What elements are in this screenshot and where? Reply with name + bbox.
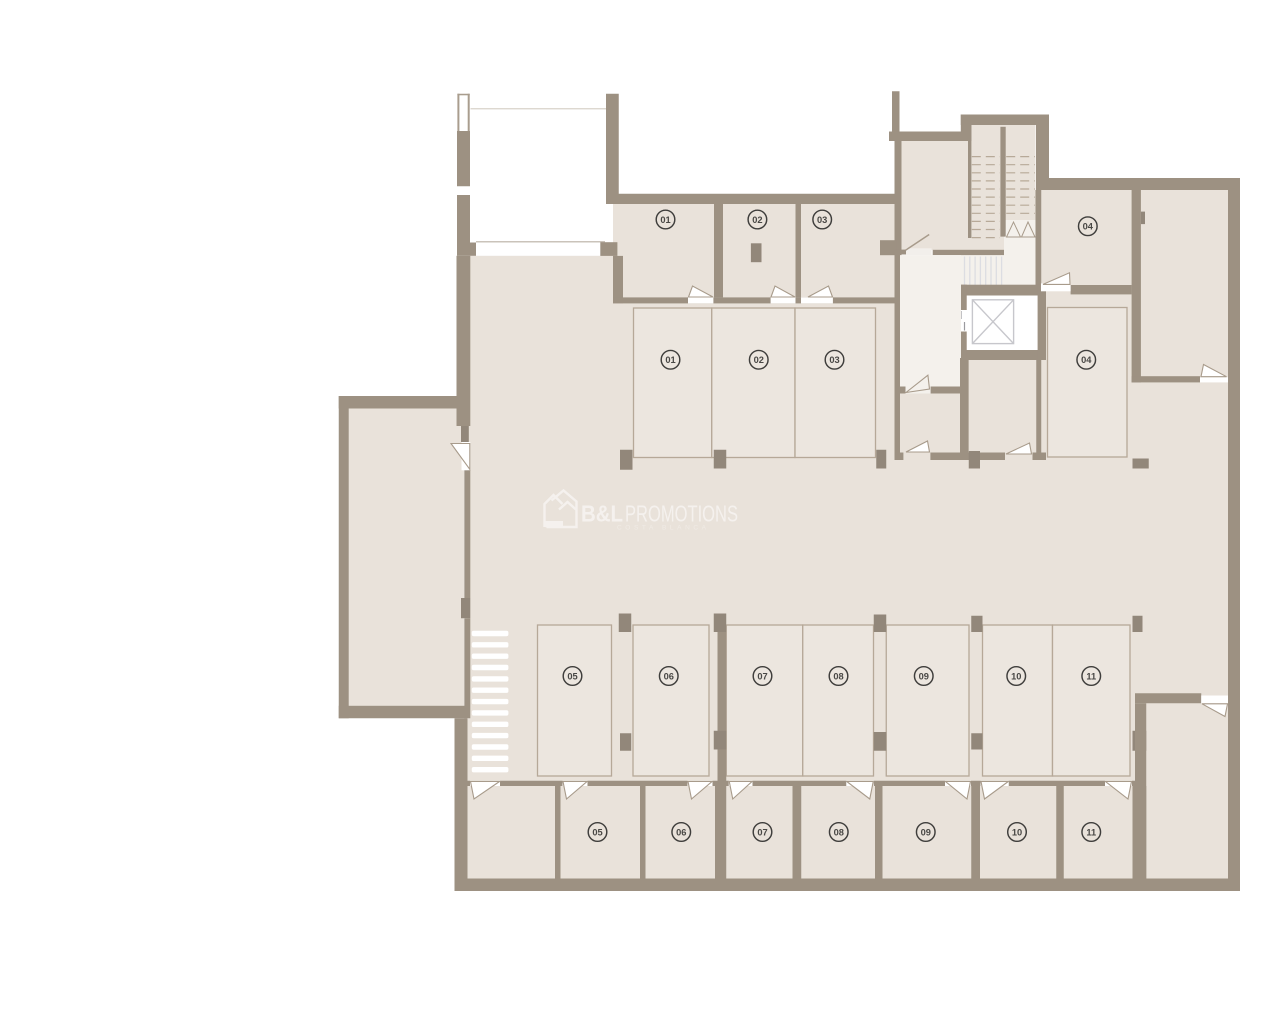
svg-text:COSTA BLANCA: COSTA BLANCA: [617, 525, 709, 532]
svg-text:08: 08: [834, 827, 844, 837]
svg-text:03: 03: [829, 355, 839, 365]
svg-text:PROMOTIONS: PROMOTIONS: [625, 501, 738, 527]
svg-text:03: 03: [817, 215, 827, 225]
svg-text:10: 10: [1012, 827, 1022, 837]
svg-text:06: 06: [676, 827, 686, 837]
svg-text:11: 11: [1086, 671, 1096, 681]
svg-text:04: 04: [1083, 222, 1094, 232]
svg-text:02: 02: [752, 215, 762, 225]
svg-text:B&L: B&L: [581, 501, 623, 527]
svg-text:05: 05: [592, 827, 602, 837]
svg-text:09: 09: [921, 827, 931, 837]
svg-text:11: 11: [1086, 827, 1096, 837]
svg-text:01: 01: [665, 355, 675, 365]
svg-text:10: 10: [1011, 671, 1021, 681]
svg-text:04: 04: [1081, 355, 1092, 365]
svg-text:05: 05: [567, 671, 577, 681]
svg-text:07: 07: [757, 671, 767, 681]
svg-text:08: 08: [833, 671, 843, 681]
svg-text:06: 06: [664, 671, 674, 681]
svg-text:01: 01: [660, 215, 670, 225]
svg-text:02: 02: [754, 355, 764, 365]
svg-text:09: 09: [919, 671, 929, 681]
svg-text:07: 07: [757, 827, 767, 837]
